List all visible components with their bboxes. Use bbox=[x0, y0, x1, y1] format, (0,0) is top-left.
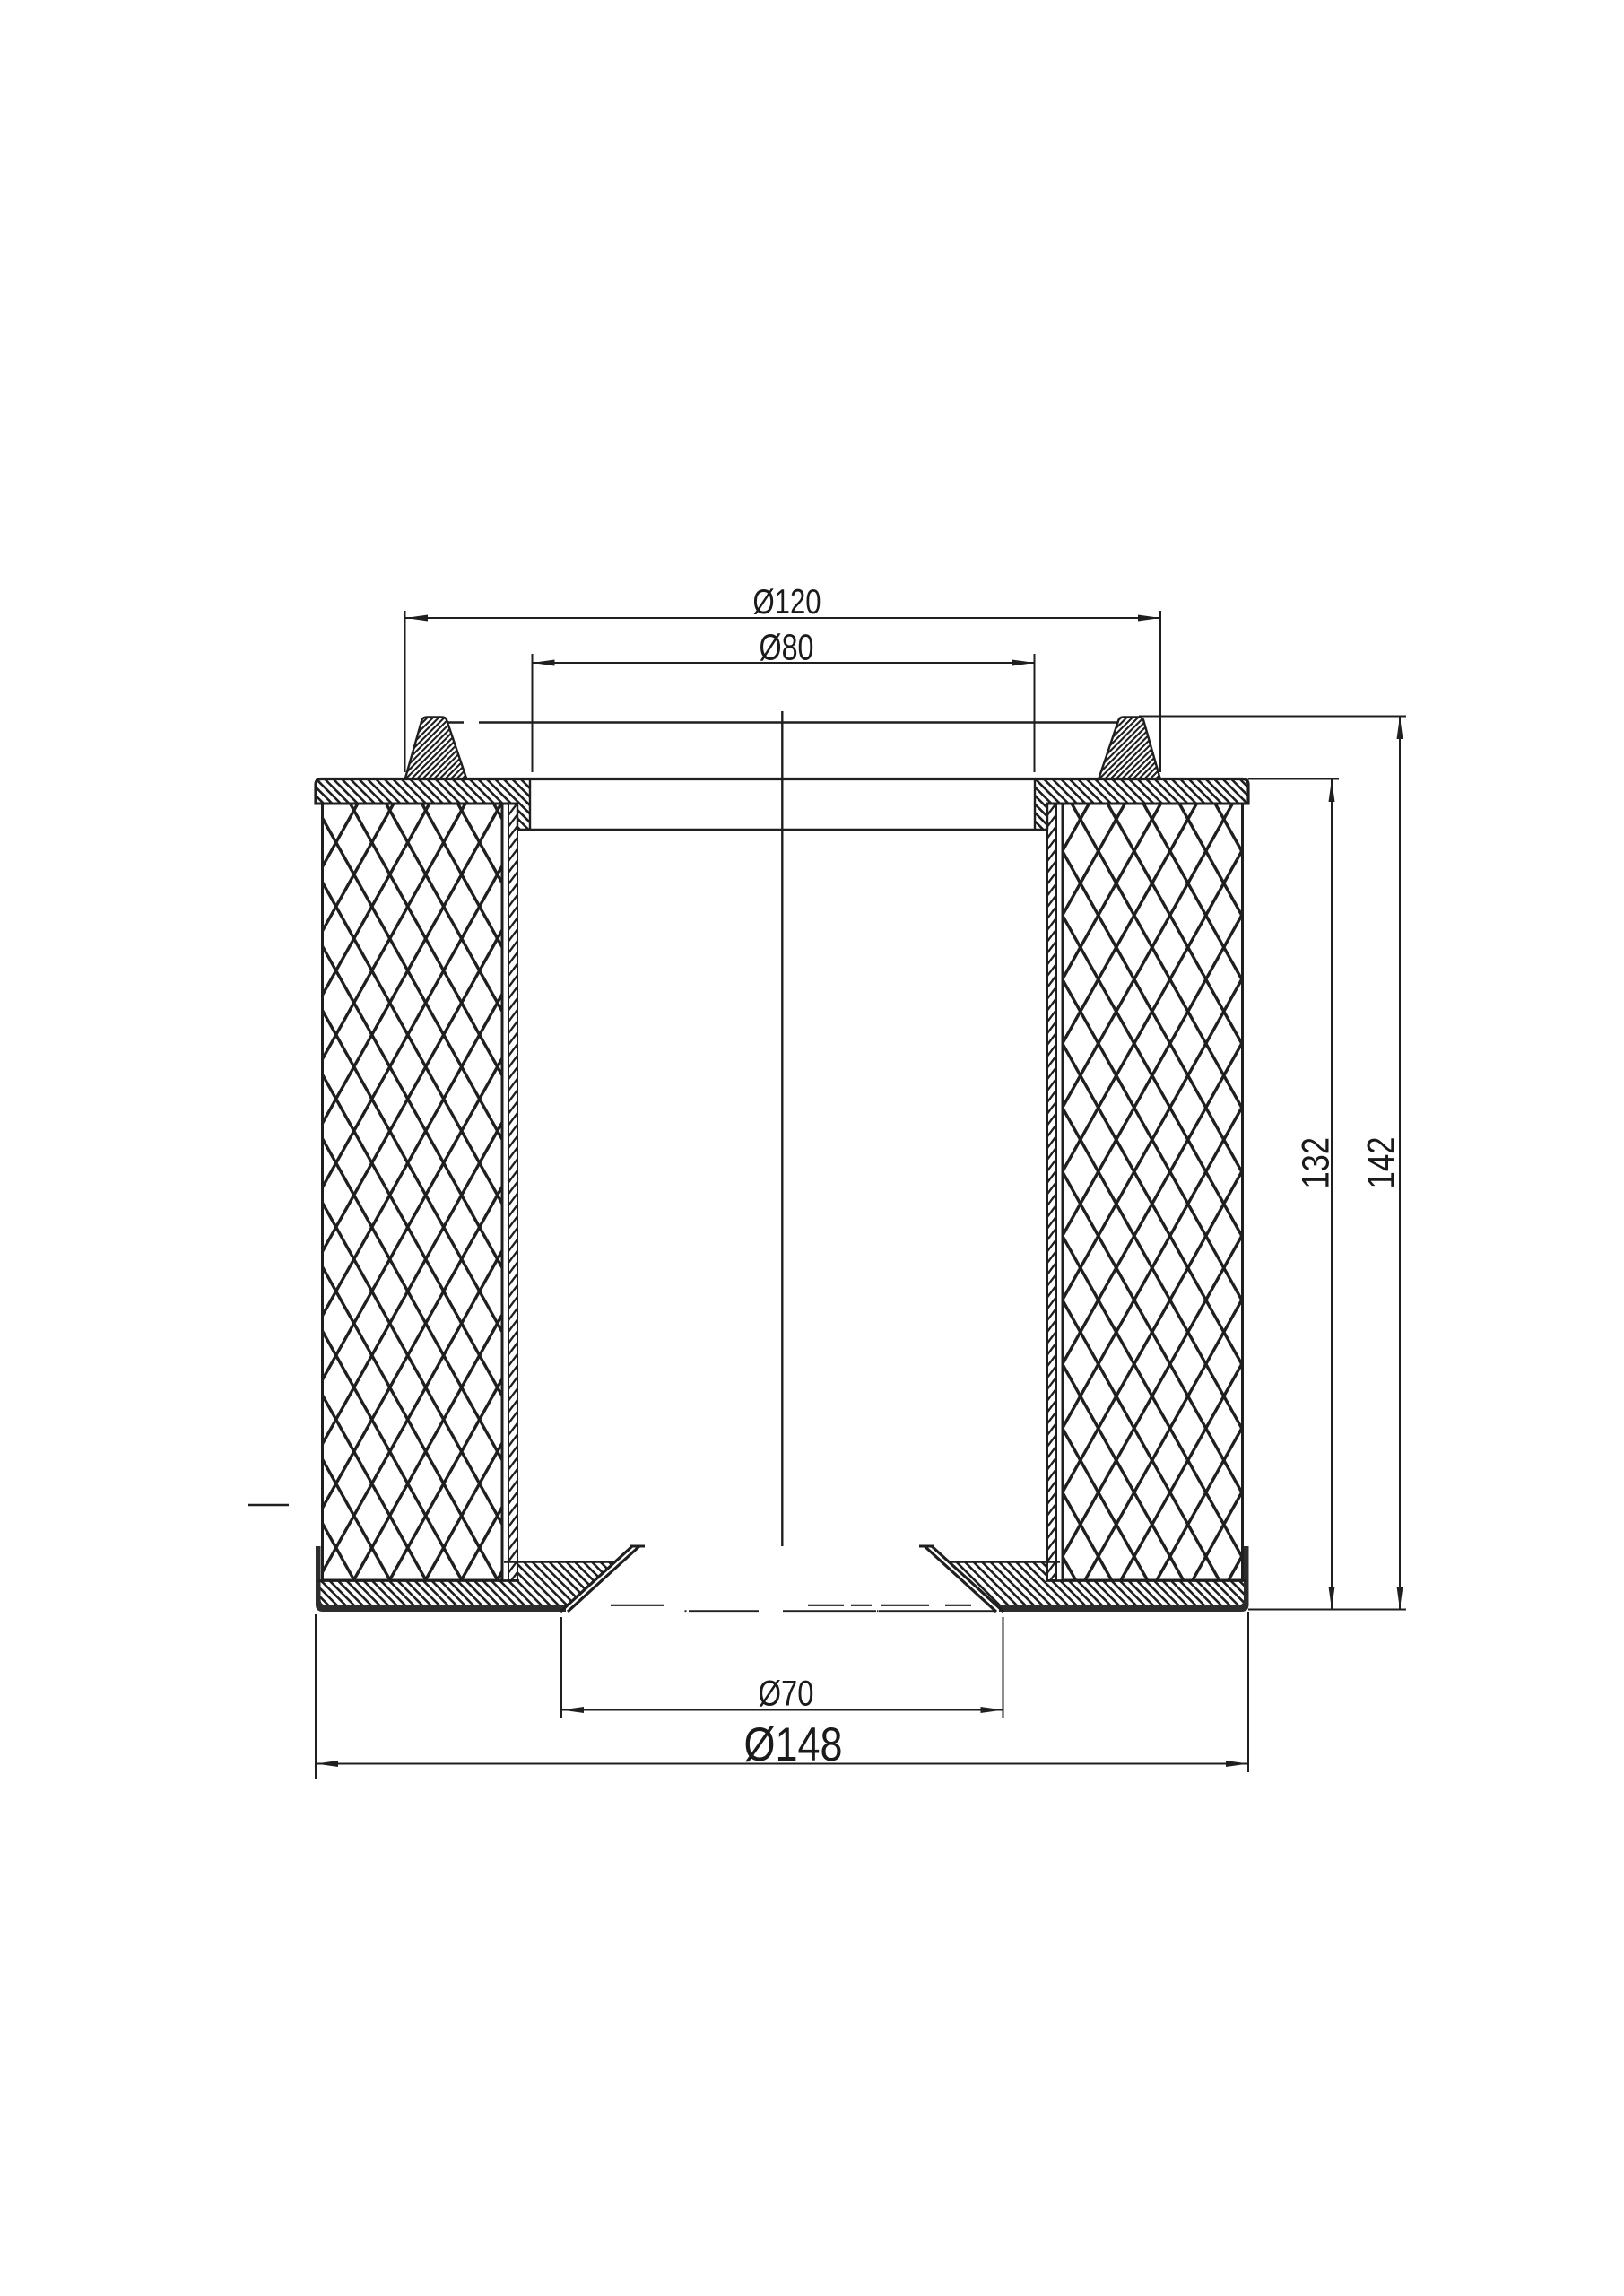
svg-text:132: 132 bbox=[1296, 1137, 1338, 1189]
svg-text:142: 142 bbox=[1361, 1137, 1403, 1189]
svg-text:Ø148: Ø148 bbox=[744, 1718, 843, 1771]
svg-text:Ø80: Ø80 bbox=[760, 627, 814, 668]
svg-text:Ø120: Ø120 bbox=[753, 583, 821, 622]
svg-text:Ø70: Ø70 bbox=[759, 1674, 814, 1714]
